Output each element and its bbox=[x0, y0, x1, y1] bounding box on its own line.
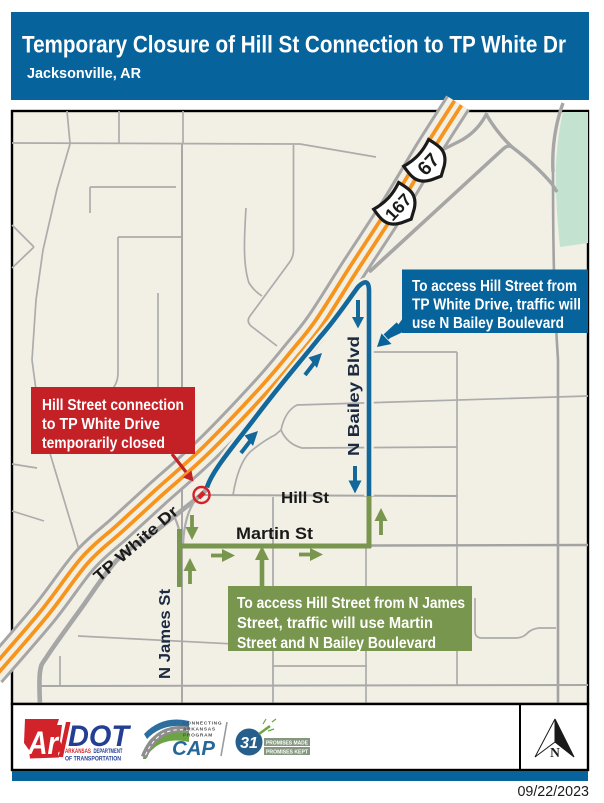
svg-text:To access Hill Street from: To access Hill Street from bbox=[412, 278, 577, 295]
svg-text:ARKANSAS: ARKANSAS bbox=[65, 748, 91, 755]
svg-text:use N Bailey Boulevard: use N Bailey Boulevard bbox=[412, 315, 564, 332]
svg-text:Ar: Ar bbox=[27, 725, 59, 761]
svg-text:09/22/2023: 09/22/2023 bbox=[517, 784, 589, 800]
svg-text:PROMISES MADE: PROMISES MADE bbox=[266, 740, 308, 746]
svg-text:N Bailey Blvd: N Bailey Blvd bbox=[346, 336, 363, 456]
svg-text:Jacksonville, AR: Jacksonville, AR bbox=[27, 65, 141, 82]
svg-text:ARKANSAS: ARKANSAS bbox=[183, 727, 216, 733]
svg-text:CAP: CAP bbox=[172, 738, 216, 760]
svg-text:OF TRANSPORTATION: OF TRANSPORTATION bbox=[65, 756, 121, 763]
svg-text:Hill St: Hill St bbox=[281, 490, 330, 507]
svg-text:To access Hill Street from N J: To access Hill Street from N James bbox=[237, 595, 465, 612]
svg-text:PROMISES KEPT: PROMISES KEPT bbox=[266, 749, 309, 755]
svg-text:N James St: N James St bbox=[157, 588, 174, 679]
svg-text:Temporary Closure of Hill St C: Temporary Closure of Hill St Connection … bbox=[22, 32, 566, 59]
svg-text:DEPARTMENT: DEPARTMENT bbox=[94, 748, 123, 755]
svg-text:temporarily closed: temporarily closed bbox=[42, 435, 165, 452]
svg-text:Street, traffic will use Marti: Street, traffic will use Martin bbox=[237, 615, 433, 632]
svg-text:TP White Drive, traffic will: TP White Drive, traffic will bbox=[412, 297, 581, 314]
svg-text:CONNECTING: CONNECTING bbox=[183, 721, 222, 727]
svg-text:Street and N Bailey Boulevard: Street and N Bailey Boulevard bbox=[237, 635, 436, 652]
svg-text:N: N bbox=[550, 745, 560, 760]
svg-text:to TP White Drive: to TP White Drive bbox=[42, 416, 160, 433]
svg-text:31: 31 bbox=[240, 735, 258, 752]
svg-text:Hill Street connection: Hill Street connection bbox=[42, 397, 184, 414]
svg-text:Martin St: Martin St bbox=[236, 525, 314, 543]
